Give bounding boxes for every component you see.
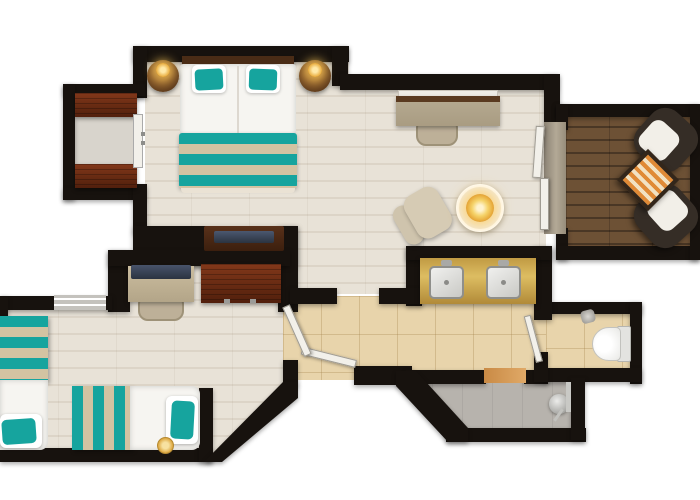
sink-left-drain <box>444 280 449 285</box>
closet-wall-left <box>63 84 75 200</box>
wall-shower-bottom <box>446 428 586 442</box>
wall-hall-left-low <box>283 360 298 386</box>
bed-sheet-edge <box>181 188 295 193</box>
closet-floor <box>75 112 135 166</box>
bedroom2-dresser <box>201 264 281 303</box>
twin-bed-bottom-pillow <box>170 400 195 439</box>
sliding-door-panel-lower <box>540 178 549 230</box>
sink-right-drain <box>501 280 506 285</box>
nightstand-left-lamp <box>156 63 170 77</box>
side-table-lamp <box>466 194 494 222</box>
king-bed-center-seam <box>237 66 239 134</box>
bed-foot-striped-runner <box>179 133 297 188</box>
sink-right-faucet <box>498 260 509 266</box>
nightstand-right-lamp <box>308 63 322 77</box>
wall-hall-opening-right <box>379 288 422 304</box>
dresser-handle-right <box>250 299 256 303</box>
bedroom2-window <box>54 295 106 310</box>
wall-hall-bottom-right <box>354 366 412 385</box>
floor-plan <box>0 0 700 500</box>
wall-bedroom2-right <box>199 388 213 462</box>
desk <box>396 96 500 126</box>
bedroom2-flat-tv <box>131 265 191 279</box>
shower-threshold <box>484 368 526 383</box>
pillow-right-teal <box>249 69 278 91</box>
shower-glass-panel <box>566 382 571 412</box>
toilet-bowl <box>592 327 621 361</box>
closet-door-handle-top <box>141 132 145 136</box>
closet-dresser-bottom <box>75 164 137 188</box>
wall-top-right <box>340 74 558 90</box>
sink-left-faucet <box>441 260 452 266</box>
wall-hall-opening-left <box>290 288 337 304</box>
dresser-handle-left <box>224 299 230 303</box>
balcony-wall-bottom <box>556 246 700 260</box>
pillow-left-teal <box>194 68 223 90</box>
wall-shower-top-left <box>406 370 486 384</box>
closet-dresser-top <box>75 93 137 117</box>
twin-bed-left-pillow <box>1 418 37 445</box>
bedroom2-small-lamp <box>157 437 174 454</box>
twin-bed-left-blanket <box>0 316 48 382</box>
flat-tv <box>214 231 274 243</box>
wall-toilet-bottom <box>544 368 642 382</box>
wall-bedroom2-bottom <box>0 448 212 462</box>
wall-shower-glass-side <box>571 378 585 440</box>
twin-bed-bottom-blanket <box>72 386 132 450</box>
closet-door-handle-bottom <box>141 141 145 145</box>
